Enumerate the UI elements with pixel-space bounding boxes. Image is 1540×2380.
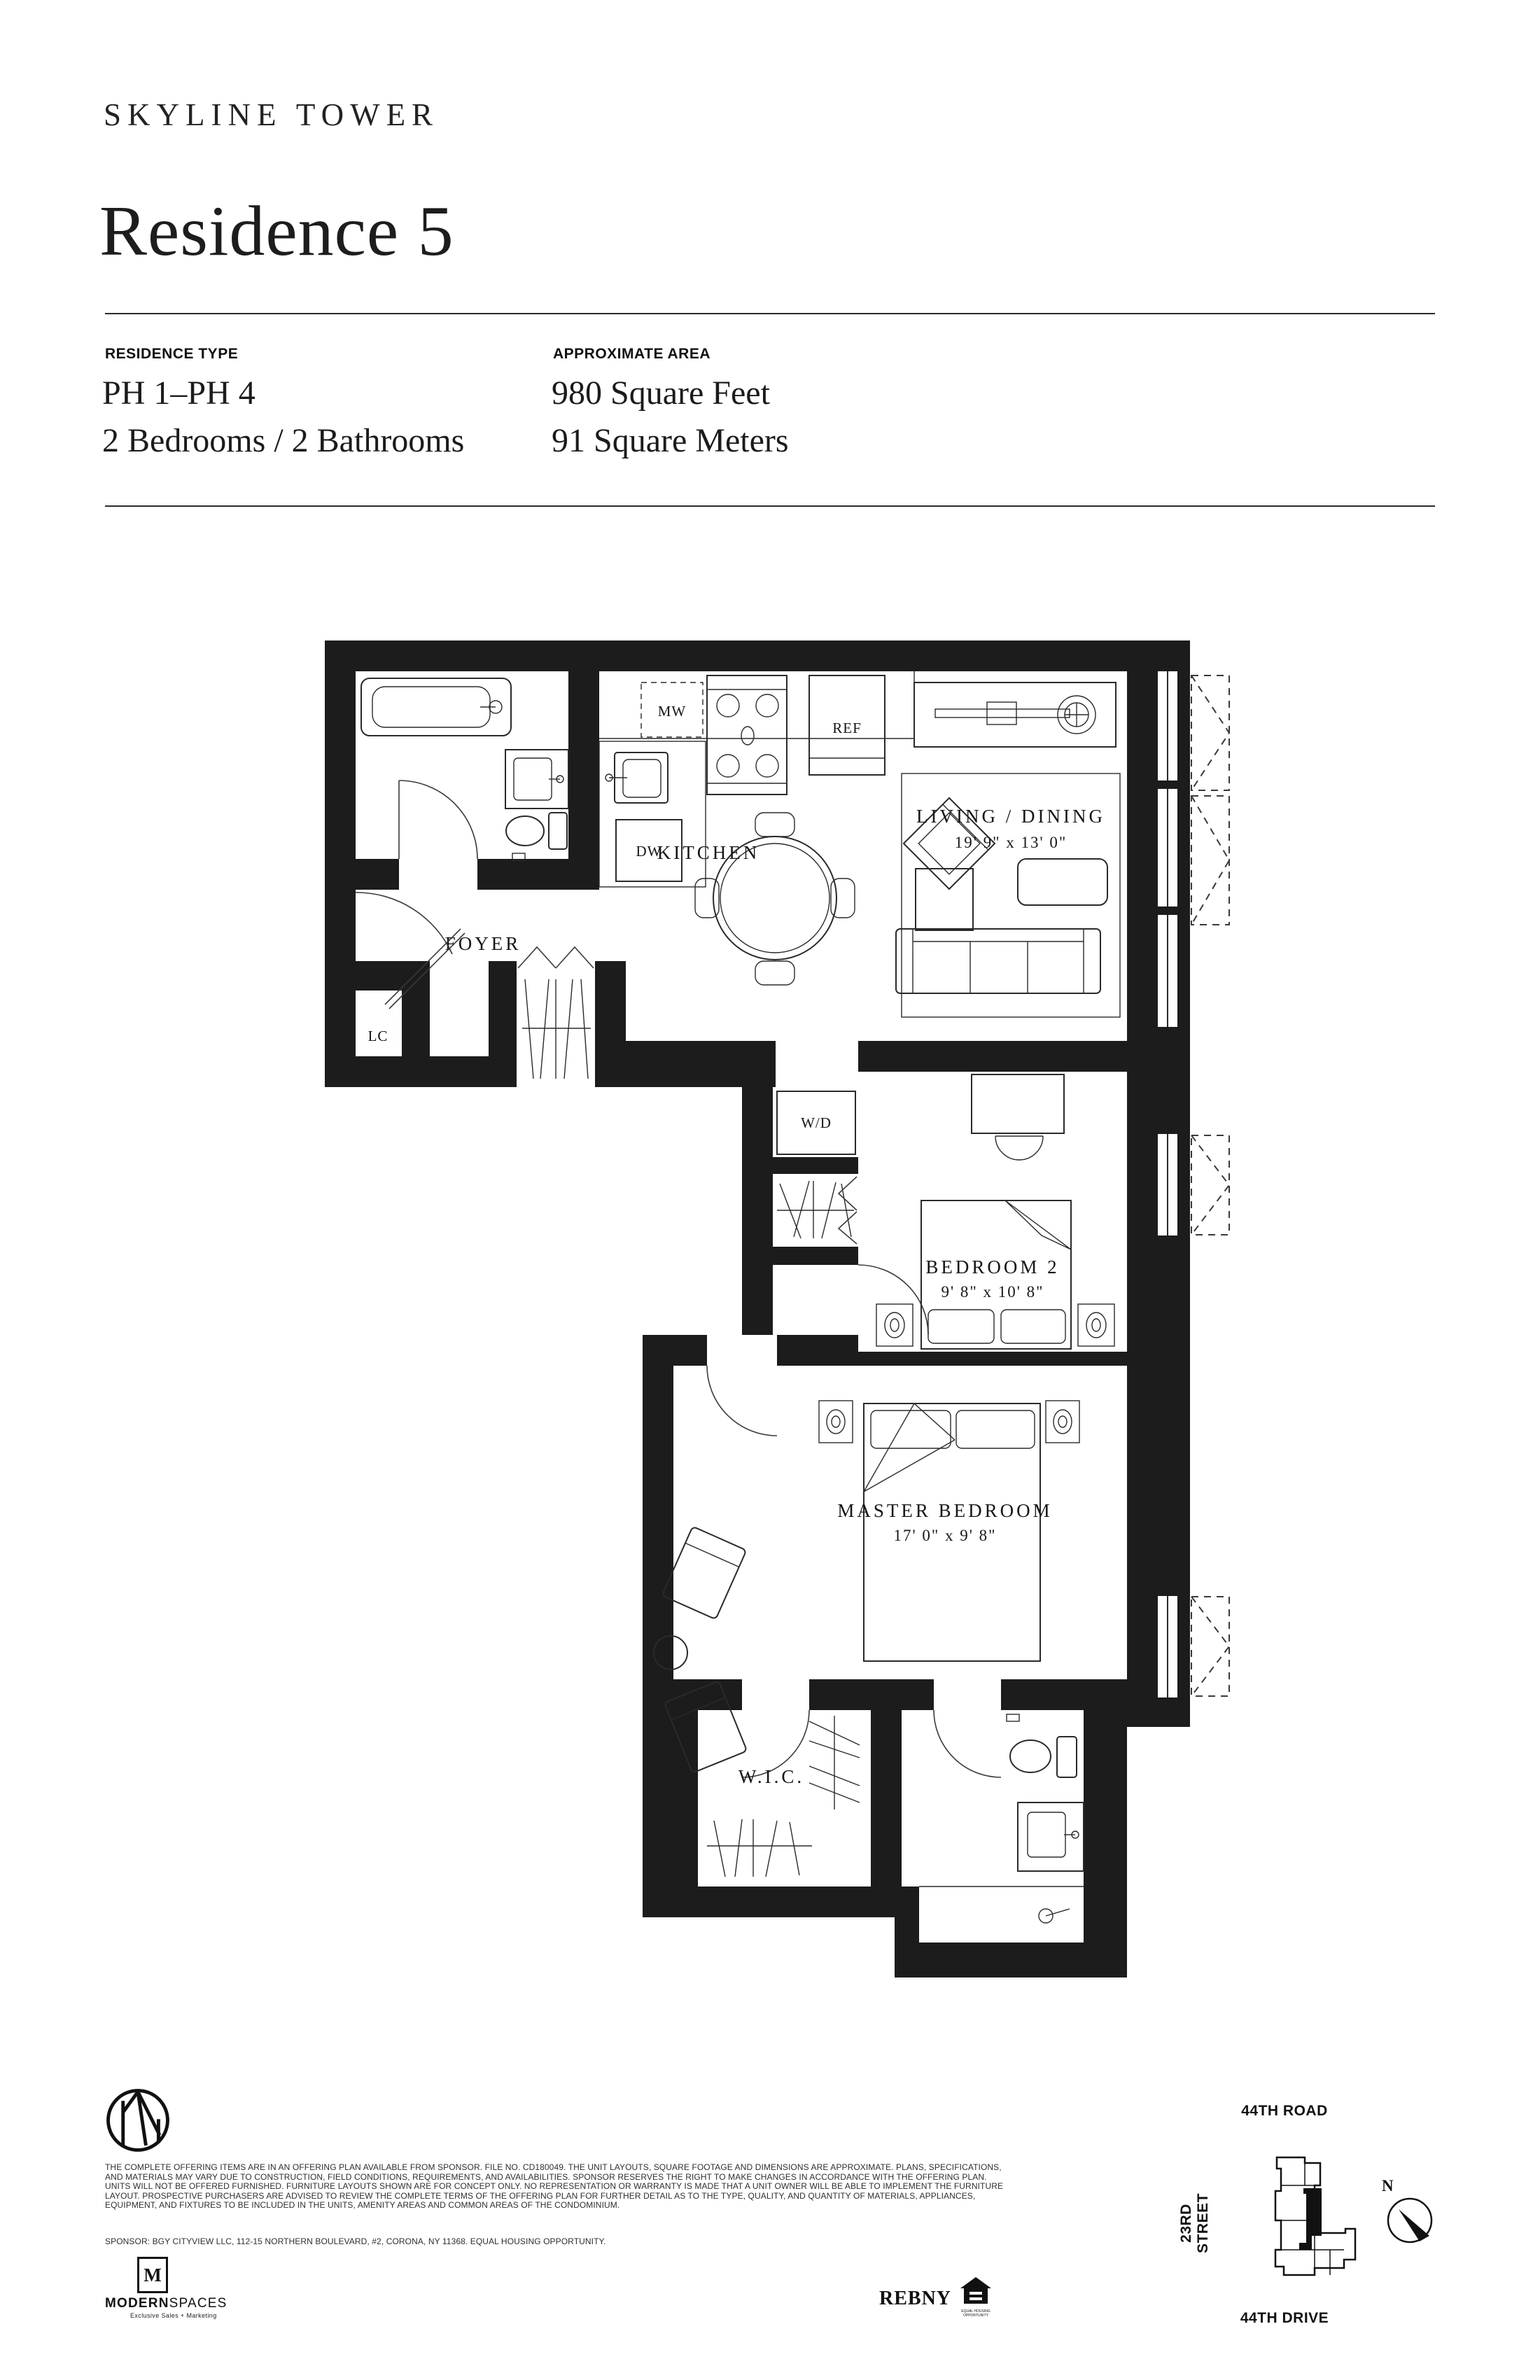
mw-label: MW <box>658 703 687 720</box>
hall-lower <box>773 1265 858 1335</box>
modern-spaces-tagline: Exclusive Sales + Marketing <box>130 2312 217 2319</box>
ref-label: REF <box>832 720 862 736</box>
residence-type-label: RESIDENCE TYPE <box>105 346 238 363</box>
residence-type-line2: 2 Bedrooms / 2 Bathrooms <box>102 421 464 460</box>
master-dims: 17' 0" x 9' 8" <box>893 1527 996 1544</box>
divider-specs <box>105 505 1435 507</box>
floorplan-page: SKYLINE TOWER Residence 5 RESIDENCE TYPE… <box>0 0 1540 2380</box>
floor-plan: MW REF DW <box>315 612 1239 1981</box>
modern-spaces-logo-icon: M <box>137 2257 168 2293</box>
divider-top <box>105 313 1435 314</box>
bath2-door-opening <box>399 859 477 890</box>
lc-wall-right <box>402 961 430 1056</box>
living-label: LIVING / DINING <box>916 806 1105 827</box>
entry-closet-wall-right <box>595 961 626 1087</box>
lc-wall-top <box>356 961 402 990</box>
living-dims: 19' 9" x 13' 0" <box>955 834 1067 851</box>
wic-label: W.I.C. <box>738 1766 804 1787</box>
residence-type-line1: PH 1–PH 4 <box>102 374 255 412</box>
area-line1: 980 Square Feet <box>552 374 770 412</box>
bathroom2-floor <box>356 671 568 859</box>
compass-icon: N <box>1373 2169 1443 2253</box>
bedroom2-floor <box>858 1072 1127 1352</box>
area-line2: 91 Square Meters <box>552 421 789 460</box>
master-label: MASTER BEDROOM <box>837 1500 1052 1521</box>
equal-housing-icon: EQUAL HOUSING OPPORTUNITY <box>960 2276 991 2318</box>
foyer-label: FOYER <box>445 933 521 954</box>
compass-needle <box>1399 2209 1429 2241</box>
skyline-mark-icon <box>104 2086 172 2155</box>
modern-spaces-name: MODERNSPACES <box>105 2296 227 2311</box>
entry-closet-wall-left <box>489 961 517 1087</box>
lc-label: LC <box>368 1028 388 1044</box>
street-44th-road: 44TH ROAD <box>1232 2103 1337 2120</box>
sponsor-text: SPONSOR: BGY CITYVIEW LLC, 112-15 NORTHE… <box>105 2237 1011 2247</box>
bedroom2-dims: 9' 8" x 10' 8" <box>941 1283 1044 1301</box>
wd-label: W/D <box>801 1114 832 1131</box>
modern-spaces-letter: M <box>143 2264 161 2286</box>
wic-floor <box>698 1710 871 1886</box>
modern-spaces-bold: MODERN <box>105 2296 169 2311</box>
rebny-logo: REBNY <box>879 2288 951 2310</box>
bedroom2-label: BEDROOM 2 <box>925 1256 1059 1277</box>
disclaimer-text: THE COMPLETE OFFERING ITEMS ARE IN AN OF… <box>105 2163 1011 2211</box>
building-key-plan <box>1259 2155 1364 2288</box>
master-door-opening <box>707 1335 777 1366</box>
street-23rd-street: 23RD STREET <box>1178 2174 1212 2272</box>
compass-north-label: N <box>1382 2177 1394 2194</box>
shower-floor <box>919 1886 1084 1942</box>
wic-door-opening <box>742 1679 809 1710</box>
brand-name: SKYLINE TOWER <box>104 97 439 133</box>
balcony-markers <box>1191 675 1229 1696</box>
hall-opening <box>776 1041 858 1087</box>
street-44th-drive: 44TH DRIVE <box>1232 2310 1337 2327</box>
bath3-door-opening <box>934 1679 1001 1710</box>
equal-housing-text: EQUAL HOUSING OPPORTUNITY <box>960 2309 991 2318</box>
master-floor <box>673 1366 1127 1679</box>
bath3-floor <box>902 1710 1084 1886</box>
kitchen-label: KITCHEN <box>657 842 759 863</box>
page-title: Residence 5 <box>99 190 454 272</box>
approximate-area-label: APPROXIMATE AREA <box>553 346 710 363</box>
modern-spaces-light: SPACES <box>169 2296 227 2311</box>
